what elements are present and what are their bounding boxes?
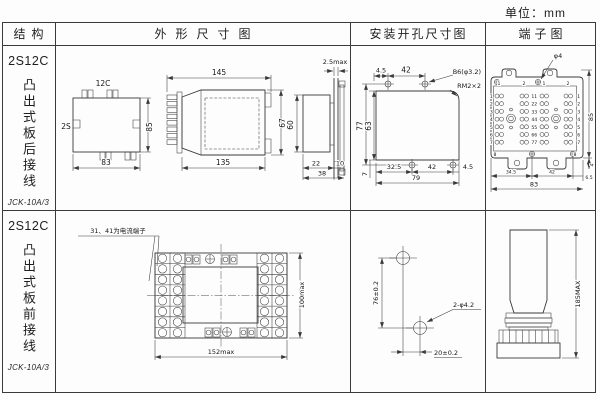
dim-38: 38 bbox=[318, 170, 326, 178]
svg-text:7: 7 bbox=[490, 140, 493, 146]
dim-7: 7 bbox=[361, 172, 369, 176]
model-label: 2S12C bbox=[8, 54, 49, 68]
dim-2-5max: 2.5max bbox=[323, 58, 348, 66]
dim-32-5: 32.5 bbox=[387, 163, 401, 171]
model-label: 2S12C bbox=[8, 219, 49, 233]
outline-drawing-rear: 12C 2S 85 83 145 135 bbox=[55, 45, 350, 210]
mounting-holes bbox=[382, 78, 459, 171]
dim-4-5: 4.5 bbox=[376, 67, 386, 75]
dim-10: 10 bbox=[336, 160, 344, 168]
svg-text:77: 77 bbox=[531, 140, 537, 146]
dim-152max: 152max bbox=[208, 348, 235, 356]
dim-42: 42 bbox=[401, 66, 411, 75]
plate-stack bbox=[505, 313, 552, 330]
svg-text:4: 4 bbox=[577, 117, 580, 123]
svg-text:4: 4 bbox=[490, 117, 493, 123]
terminal-drawing-front: 185MAX bbox=[485, 210, 597, 392]
drill-holes bbox=[389, 246, 434, 340]
svg-text:22: 22 bbox=[531, 102, 537, 108]
terminal-drawing-rear: φ4 1 2 1 2 11 22 33 44 55 66 77 11 22 33… bbox=[485, 45, 597, 210]
unit-label: 单位：mm bbox=[505, 4, 566, 21]
svg-text:3: 3 bbox=[577, 109, 580, 115]
svg-text:55: 55 bbox=[531, 125, 537, 131]
header-terminal: 端子图 bbox=[485, 22, 596, 45]
structure-cell-row1: 2S12C 凸出式板后接线 JCK-10A/3 bbox=[2, 45, 55, 210]
svg-text:1: 1 bbox=[490, 94, 493, 100]
svg-text:33: 33 bbox=[531, 109, 537, 115]
type-label: 凸出式板后接线 bbox=[19, 78, 38, 190]
svg-text:44: 44 bbox=[531, 117, 537, 123]
mounting-drawing-front: 76±0.2 2-φ4.2 20±0.2 bbox=[350, 210, 485, 392]
front-view: 12C 2S 85 83 bbox=[61, 79, 154, 171]
svg-text:3: 3 bbox=[490, 109, 493, 115]
svg-text:1: 1 bbox=[577, 94, 580, 100]
mounting-drawing-rear: 4.5 42 B6(φ3.2) RM2×2 77 63 7 32.5 42 4.… bbox=[350, 45, 485, 210]
dim-4-5b: 4.5 bbox=[463, 163, 473, 171]
dim-6-5: 6.5 bbox=[585, 175, 592, 181]
dim-83: 83 bbox=[101, 158, 111, 167]
dim-100max: 100max bbox=[298, 282, 306, 309]
dim-20: 20±0.2 bbox=[434, 349, 458, 357]
dim-2s: 2S bbox=[61, 122, 71, 131]
dim-34-5: 34.5 bbox=[506, 170, 516, 176]
side-view: 145 135 67 bbox=[167, 68, 287, 171]
structure-cell-row2: 2S12C 凸出式板前接线 JCK-10A/3 bbox=[2, 210, 55, 392]
dim-83t: 83 bbox=[530, 181, 538, 189]
screw-spec-label: RM2×2 bbox=[457, 82, 481, 90]
header-outline: 外形尺寸图 bbox=[55, 22, 350, 45]
svg-text:6: 6 bbox=[577, 133, 580, 139]
svg-text:2: 2 bbox=[567, 81, 570, 87]
svg-text:8: 8 bbox=[494, 152, 497, 158]
dim-60: 60 bbox=[286, 120, 295, 130]
dim-22: 22 bbox=[312, 160, 320, 168]
svg-text:7: 7 bbox=[577, 140, 580, 146]
hole-count-label: 2-φ4.2 bbox=[453, 301, 474, 309]
dim-42t: 42 bbox=[549, 170, 555, 176]
svg-text:1: 1 bbox=[543, 81, 546, 87]
hole-spec-label: B6(φ3.2) bbox=[453, 68, 481, 76]
socket-base bbox=[497, 330, 560, 358]
type-label: 凸出式板前接线 bbox=[19, 243, 38, 355]
svg-text:2: 2 bbox=[523, 81, 526, 87]
dim-85: 85 bbox=[145, 122, 154, 132]
header-mounting: 安装开孔尺寸图 bbox=[350, 22, 485, 45]
dim-42b: 42 bbox=[428, 163, 436, 171]
current-terminal-note: 31、41为电流端子 bbox=[90, 226, 146, 235]
relay-dimension-sheet: 单位：mm 结构 外形尺寸图 安装开孔尺寸图 端子图 2S12C 凸出式板后接线… bbox=[0, 0, 600, 400]
dim-12c: 12C bbox=[96, 79, 111, 88]
svg-text:1: 1 bbox=[498, 81, 501, 87]
outline-drawing-front: 31、41为电流端子 bbox=[55, 210, 350, 392]
svg-text:66: 66 bbox=[531, 133, 537, 139]
dim-185max: 185MAX bbox=[574, 280, 582, 307]
dim-79: 79 bbox=[412, 174, 420, 182]
dim-135: 135 bbox=[216, 158, 231, 167]
dim-145: 145 bbox=[212, 68, 227, 77]
product-label: JCK-10A/3 bbox=[8, 363, 49, 372]
svg-text:2: 2 bbox=[577, 102, 580, 108]
svg-text:8: 8 bbox=[574, 152, 577, 158]
product-label: JCK-10A/3 bbox=[8, 198, 49, 207]
svg-text:6: 6 bbox=[490, 133, 493, 139]
panel-section-view: 2.5max 60 22 10 38 bbox=[286, 58, 348, 180]
svg-text:5: 5 bbox=[577, 125, 580, 131]
dim-phi4: φ4 bbox=[554, 52, 562, 60]
dim-4t: 4 bbox=[590, 163, 596, 166]
svg-text:11: 11 bbox=[531, 94, 537, 100]
dim-76: 76±0.2 bbox=[372, 281, 380, 305]
svg-text:5: 5 bbox=[490, 125, 493, 131]
svg-text:2: 2 bbox=[490, 102, 493, 108]
dim-63: 63 bbox=[364, 121, 373, 131]
header-structure: 结构 bbox=[2, 22, 55, 45]
dim-85t: 85 bbox=[587, 113, 595, 121]
